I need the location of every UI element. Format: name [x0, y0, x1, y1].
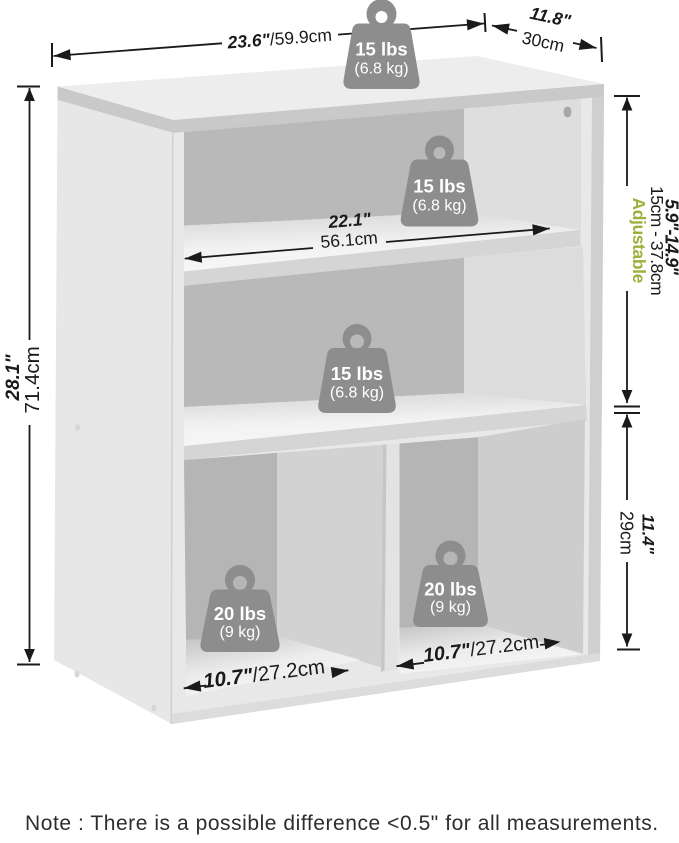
svg-text:15 lbs: 15 lbs	[355, 39, 407, 60]
svg-text:71.4cm: 71.4cm	[21, 346, 44, 413]
svg-text:Adjustable: Adjustable	[629, 198, 649, 284]
svg-text:(6.8 kg): (6.8 kg)	[330, 384, 384, 401]
svg-text:20 lbs: 20 lbs	[424, 578, 476, 599]
svg-text:11.4": 11.4"	[639, 514, 658, 555]
svg-text:(9 kg): (9 kg)	[220, 624, 261, 641]
svg-text:29cm: 29cm	[617, 511, 637, 555]
svg-text:15cm - 37.8cm: 15cm - 37.8cm	[647, 186, 667, 295]
svg-text:Note : There is a possible dif: Note : There is a possible difference <0…	[25, 812, 659, 835]
svg-text:15 lbs: 15 lbs	[413, 175, 465, 196]
svg-text:(9 kg): (9 kg)	[430, 599, 471, 616]
svg-text:15 lbs: 15 lbs	[331, 363, 383, 384]
svg-text:(6.8 kg): (6.8 kg)	[354, 60, 408, 77]
svg-text:(6.8 kg): (6.8 kg)	[412, 197, 466, 214]
svg-text:20 lbs: 20 lbs	[214, 603, 266, 624]
